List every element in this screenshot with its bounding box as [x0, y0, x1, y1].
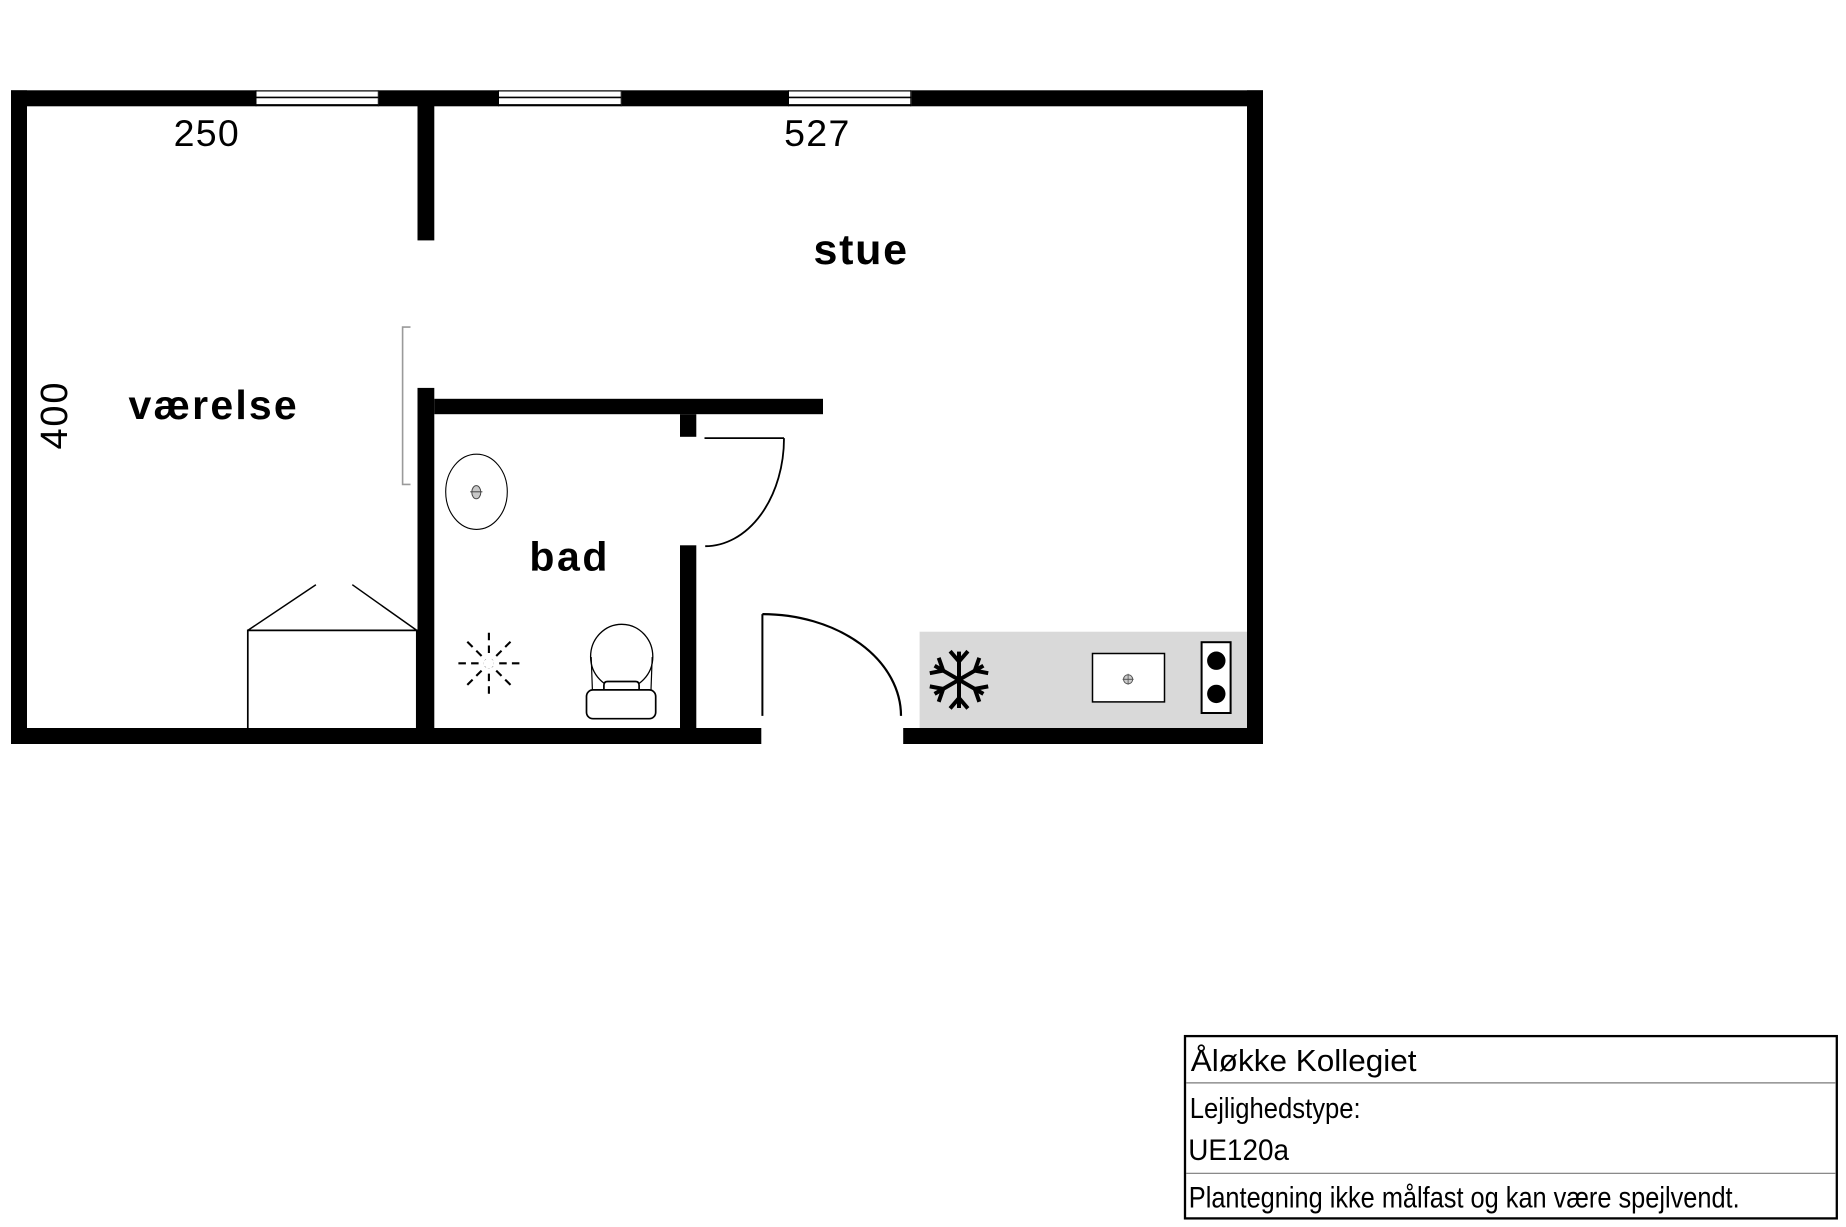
svg-text:værelse: værelse [129, 382, 299, 428]
svg-text:Åløkke Kollegiet: Åløkke Kollegiet [1191, 1043, 1417, 1078]
svg-text:UE120a: UE120a [1188, 1134, 1290, 1167]
svg-text:400: 400 [34, 381, 76, 450]
svg-text:bad: bad [529, 534, 610, 580]
svg-text:Plantegning ikke målfast og ka: Plantegning ikke målfast og kan være spe… [1189, 1181, 1740, 1214]
svg-text:Lejlighedstype:: Lejlighedstype: [1190, 1091, 1361, 1124]
svg-text:stue: stue [814, 226, 909, 274]
svg-text:250: 250 [174, 112, 240, 154]
svg-text:527: 527 [784, 112, 850, 154]
